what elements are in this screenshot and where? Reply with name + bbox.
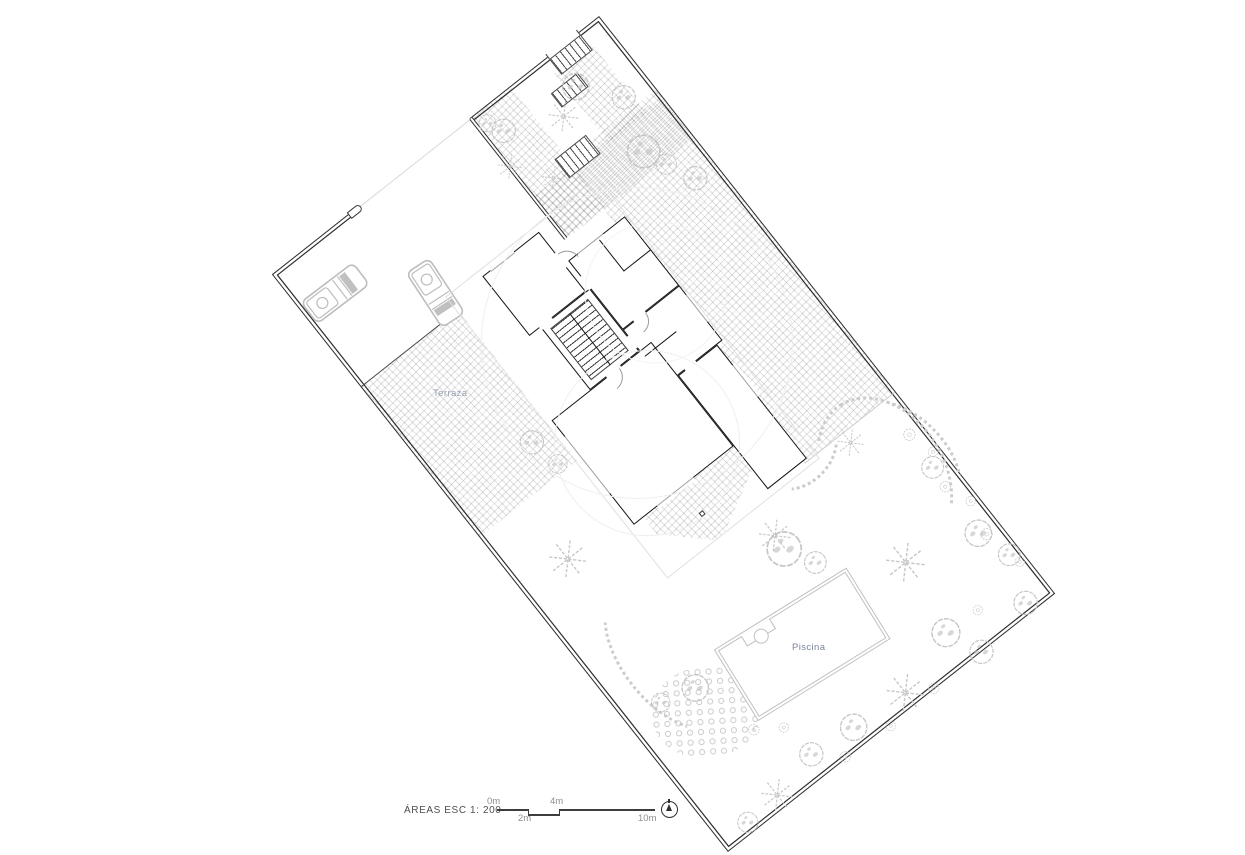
star-tree-icon [830, 422, 872, 464]
pool-label: Piscina [792, 642, 825, 653]
blob-tree-icon [730, 804, 767, 841]
shrub-tree-icon [770, 714, 798, 742]
scale-mark-0m: 0m [487, 796, 500, 807]
star-tree-icon [491, 147, 530, 186]
star-tree-icon [535, 160, 572, 197]
blob-tree-icon [644, 686, 678, 720]
blob-tree-icon [830, 703, 878, 751]
star-tree-icon [875, 532, 937, 594]
north-arrow-icon [661, 801, 678, 818]
plot-boundary [272, 16, 1055, 852]
scale-mark-2m: 2m [518, 813, 531, 824]
shrub-tree-icon [738, 714, 769, 745]
blob-tree-icon [790, 733, 832, 775]
scale-bar-segment [497, 809, 529, 811]
north-arrow-tick [668, 799, 670, 803]
shrub-tree-icon [964, 596, 992, 624]
scale-bar-segment [528, 814, 560, 816]
star-tree-icon [752, 770, 803, 821]
blob-tree-icon [1005, 582, 1047, 624]
scale-bar-segment [560, 809, 655, 811]
scale-mark-4m: 4m [550, 796, 563, 807]
north-arrow-needle [666, 804, 672, 811]
terrace-label: Terraza [433, 388, 467, 399]
blob-tree-icon [603, 76, 645, 118]
blob-tree-icon [671, 664, 719, 712]
scale-mark-10m: 10m [638, 813, 656, 824]
star-tree-icon [538, 530, 597, 589]
site-plan-canvas: Terraza Piscina ÁREAS ESC 1: 200 0m 2m 4… [0, 0, 1245, 855]
